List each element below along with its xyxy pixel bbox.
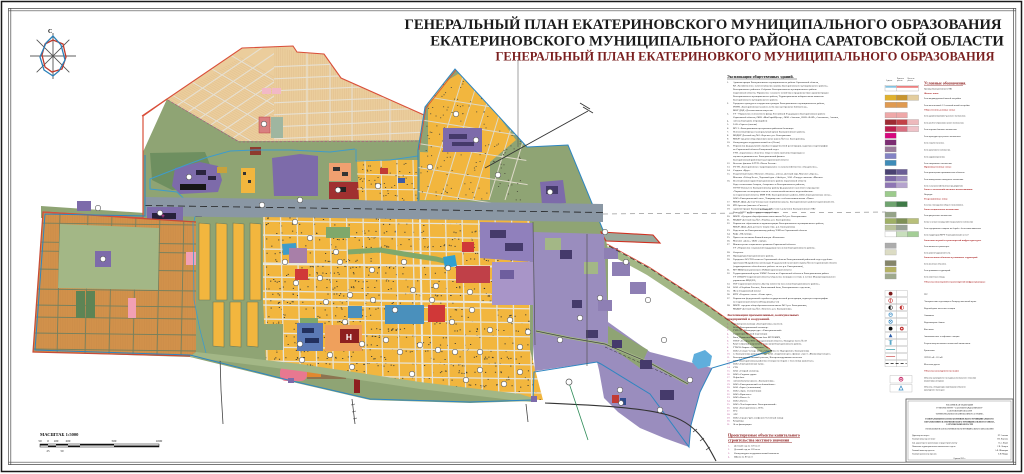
- svg-text:Зона индивидуальной жилой заст: Зона индивидуальной жилой застройки: [924, 97, 962, 100]
- svg-text:ГУ «Управление социальной подд: ГУ «Управление социальной поддержки насе…: [733, 246, 816, 249]
- svg-text:Зоны сельскохозяйственного исп: Зоны сельскохозяйственного использования…: [924, 188, 973, 191]
- svg-text:по Саратовской области, МРИ ФН: по Саратовской области, МРИ ФНС Екатерин…: [733, 194, 832, 197]
- svg-text:Отделение по Екатериновскому р: Отделение по Екатериновскому району УФК …: [733, 229, 808, 232]
- svg-text:ЛЭП 35 кВ - 110 кВ: ЛЭП 35 кВ - 110 кВ: [924, 357, 943, 359]
- svg-text:200: 200: [66, 439, 71, 443]
- svg-text:Зона режимных территорий.: Зона режимных территорий.: [924, 269, 951, 272]
- svg-text:Физкультурно-оздоровительный з: Физкультурно-оздоровительный зал (Venus): [733, 141, 780, 144]
- svg-text:Главный инженер проекта: Главный инженер проекта: [912, 449, 934, 452]
- svg-text:ОБРАЗОВАНИЯ ЕКАТЕРИНОВСКОГО МУ: ОБРАЗОВАНИЯ ЕКАТЕРИНОВСКОГО МУНИЦИПАЛЬНО…: [924, 420, 995, 423]
- svg-text:С: С: [48, 29, 52, 35]
- svg-text:Н: Н: [346, 332, 352, 342]
- svg-text:10.: 10.: [727, 141, 731, 144]
- svg-text:Зам. директора по архитектуре: Зам. директора по архитектуре и градостр…: [912, 442, 957, 444]
- svg-text:50: 50: [38, 439, 42, 443]
- svg-text:31.: 31.: [727, 423, 731, 426]
- svg-text:Зоны специального назначения:: Зоны специального назначения:: [924, 208, 959, 211]
- svg-text:Огороды.: Огороды.: [924, 194, 933, 196]
- svg-text:ГЕНЕРАЛЬНЫЙ ПЛАН ЕКАТЕРИНОВСКО: ГЕНЕРАЛЬНЫЙ ПЛАН ЕКАТЕРИНОВСКОГО МУНИЦИП…: [925, 418, 994, 421]
- svg-text:Объекты, обладающие признаками: Объекты, обладающие признаками объектов: [924, 386, 965, 389]
- svg-text:Водонапорные башни: Водонапорные башни: [924, 321, 945, 324]
- svg-text:Зона торгово-бытового назначен: Зона торгово-бытового назначения.: [924, 128, 957, 131]
- svg-text:Водозаборные насосные станции: Водозаборные насосные станции: [924, 307, 956, 310]
- svg-text:КПУ «Раздолье» кооп. «Салис ор: КПУ «Раздолье» кооп. «Салис орга»,: [733, 293, 773, 296]
- svg-text:Зона учебно-образовательного н: Зона учебно-образовательного назначения.: [924, 121, 965, 124]
- svg-text:37.: 37.: [727, 297, 731, 300]
- svg-text:Принято в: Принято в: [897, 78, 904, 80]
- svg-text:Зона территории МУЧ "Екатерино: Зона территории МУЧ "Екатериновский лесх…: [924, 233, 969, 236]
- svg-text:3.: 3.: [727, 113, 729, 116]
- svg-text:27.: 27.: [727, 243, 731, 246]
- svg-text:Скважины: Скважины: [924, 315, 934, 317]
- svg-text:Зона сельскохозяйственных пред: Зона сельскохозяйственных предприятий.: [924, 184, 963, 187]
- svg-text:32.: 32.: [727, 272, 731, 275]
- svg-text:30.: 30.: [727, 258, 731, 261]
- svg-text:Зоны зеленых насаждений специа: Зоны зеленых насаждений специального наз…: [924, 220, 973, 223]
- svg-text:строительства местного значени: строительства местного значения: [728, 438, 790, 443]
- svg-text:Зона коммунально-складского на: Зона коммунально-складского назначения.: [924, 179, 964, 181]
- svg-text:Экспликация общественных здани: Экспликация общественных зданий.: [727, 74, 794, 79]
- svg-text:МБДОУ Детский сад №3 «Топотон»: МБДОУ Детский сад №3 «Топотон» р.п. Екат…: [733, 307, 792, 310]
- svg-text:Зона ритуального назначения.: Зона ритуального назначения.: [924, 215, 952, 217]
- svg-text:Р.Г. Алешин: Р.Г. Алешин: [998, 434, 1009, 437]
- svg-text:Ералгазина: Ералгазина: [924, 350, 935, 352]
- svg-text:22.: 22.: [727, 222, 731, 225]
- svg-text:Объекты культурного наследия р: Объекты культурного наследия регионально…: [924, 377, 976, 380]
- svg-text:Зона внешнего транспорта.: Зона внешнего транспорта.: [924, 246, 950, 248]
- svg-text:Зеленые насаждения общего поль: Зеленые насаждения общего пользования.: [924, 203, 964, 206]
- svg-text:Общественно-деловые зоны:: Общественно-деловые зоны:: [924, 108, 955, 111]
- svg-text:500: 500: [112, 439, 117, 443]
- svg-text:Зона улично-дорожной сети.: Зона улично-дорожной сети.: [924, 252, 951, 255]
- svg-text:Граница Екатериновского МО: Граница Екатериновского МО: [924, 89, 952, 91]
- svg-text:ГРС: ГРС: [924, 294, 929, 296]
- svg-text:РОССИЙСКАЯ ФЕДЕРАЦИЯ: РОССИЙСКАЯ ФЕДЕРАЦИЯ: [946, 404, 974, 407]
- svg-text:ГЕНЕРАЛЬНЫЙ ПЛАН ЕКАТЕРИНОВСКО: ГЕНЕРАЛЬНЫЙ ПЛАН ЕКАТЕРИНОВСКОГО МУНИЦИП…: [404, 16, 1001, 33]
- svg-text:1.: 1.: [728, 445, 730, 448]
- svg-text:25: 25: [47, 449, 51, 453]
- svg-text:Главный архитектор проекта: Главный архитектор проекта: [912, 453, 937, 456]
- svg-text:Котельная: Котельная: [924, 329, 934, 331]
- svg-text:Физкультурно-оздоровительный к: Физкультурно-оздоровительный комплекс: [734, 452, 780, 455]
- svg-text:Зона военных объектов.: Зона военных объектов.: [924, 262, 947, 265]
- svg-text:Директор института: Директор института: [912, 435, 929, 437]
- svg-text:Зона малоэтажной 1-3 этажной ж: Зона малоэтажной 1-3 этажной жилой застр…: [924, 104, 970, 107]
- svg-text:Детский сад на 120 мест: Детский сад на 120 мест: [734, 445, 761, 448]
- svg-text:Школа на 80 мест: Школа на 80 мест: [734, 456, 754, 459]
- svg-text:Зона культового назначения.: Зона культового назначения.: [924, 150, 951, 152]
- svg-text:Магазин «Гейзер Белл», Торговы: Магазин «Гейзер Белл», Торговый дом «Айс…: [733, 176, 824, 179]
- svg-text:ГЕНЕРАЛЬНЫЙ ПЛАН ЕКАТЕРИНОВКОГ: ГЕНЕРАЛЬНЫЙ ПЛАН ЕКАТЕРИНОВКОГО МУНИЦИПА…: [495, 50, 994, 64]
- svg-text:2.: 2.: [728, 448, 730, 451]
- svg-text:Леса фильтрации: Леса фильтрации: [733, 423, 752, 426]
- svg-text:16.: 16.: [727, 180, 731, 183]
- svg-text:Зона содержания и защиты по бо: Зона содержания и защиты по борьбе с бол…: [924, 227, 982, 230]
- svg-text:15.: 15.: [727, 173, 731, 176]
- svg-text:Производственные зоны:: Производственные зоны:: [924, 166, 952, 169]
- svg-text:(памятники истории): (памятники истории): [924, 380, 944, 383]
- svg-text:ГЕНЕРАЛЬНЫЙ ПЛАН ЕКАТЕРИНОВСКО: ГЕНЕРАЛЬНЫЙ ПЛАН ЕКАТЕРИНОВСКОГО МУНИЦИП…: [925, 428, 994, 431]
- svg-text:ТЕРРИТОРИАЛЬНОЕ ПЛАНИРОВАНИЕ И: ТЕРРИТОРИАЛЬНОЕ ПЛАНИРОВАНИЕ И ЗАСТРОЙКА: [936, 413, 984, 416]
- svg-text:Екатериновское районное Собран: Екатериновское районное Собрание Екатери…: [733, 88, 817, 91]
- svg-text:ГУПП ИНСТИТУТ "САРАТОВГРАЖДАНП: ГУПП ИНСТИТУТ "САРАТОВГРАЖДАНПРОЕКТ": [936, 407, 983, 410]
- svg-text:Главный инженер институт: Главный инженер институт: [912, 438, 935, 441]
- svg-text:50: 50: [61, 449, 65, 453]
- svg-text:0: 0: [47, 439, 49, 443]
- svg-text:1000: 1000: [156, 439, 163, 443]
- svg-text:РМУК «Екатериновская межпоселе: РМУК «Екатериновская межпоселенческая це…: [733, 106, 808, 109]
- svg-text:23.: 23.: [727, 229, 731, 232]
- svg-text:3.: 3.: [728, 452, 730, 455]
- svg-text:Автоматические телефонные стан: Автоматические телефонные станции: [924, 335, 960, 338]
- svg-text:Объекты инженерной и транспорт: Объекты инженерной и транспортной инфрас…: [924, 281, 986, 284]
- svg-text:Саратов 2012 г.: Саратов 2012 г.: [953, 458, 966, 460]
- svg-text:А.В. Шишорин: А.В. Шишорин: [995, 449, 1009, 452]
- svg-text:Зона очистных отвода.: Зона очистных отвода.: [924, 277, 946, 279]
- svg-text:Зона культурно-досугового назн: Зона культурно-досугового назначения.: [924, 136, 961, 138]
- svg-text:5.: 5.: [727, 123, 729, 126]
- svg-text:2.: 2.: [727, 102, 729, 105]
- svg-text:19.: 19.: [727, 208, 731, 211]
- svg-text:36.: 36.: [727, 293, 731, 296]
- svg-text:ГУ СМЦ РФ Саратовской области,: ГУ СМЦ РФ Саратовской области, Отделение…: [733, 276, 836, 279]
- svg-text:Зоны военных объектов и режимн: Зоны военных объектов и режимных террито…: [924, 256, 978, 259]
- svg-text:4.: 4.: [728, 456, 730, 459]
- svg-text:Проект на: Проект на: [908, 78, 915, 80]
- svg-text:1.: 1.: [727, 81, 729, 84]
- svg-text:МАСШТАБ 1:5000: МАСШТАБ 1:5000: [40, 432, 79, 437]
- svg-text:культурного наследия: культурного наследия: [924, 390, 944, 392]
- svg-text:предприятий и сооружений.: предприятий и сооружений.: [727, 317, 770, 321]
- svg-text:Екатериновский районный суд Са: Екатериновский районный суд Саратовской …: [733, 158, 789, 161]
- svg-text:Е.И. Мирра: Е.И. Мирра: [998, 454, 1008, 456]
- svg-text:ЗАО «Сарнет»(аптека): ЗАО «Сарнет»(аптека): [733, 123, 757, 126]
- svg-text:Зона размещения промышленных о: Зона размещения промышленных объектов: [924, 171, 964, 174]
- svg-text:ЕКАТЕРИНОВСКОГО МУНИЦИПАЛЬНОГО: ЕКАТЕРИНОВСКОГО МУНИЦИПАЛЬНОГО РАЙОНА СА…: [430, 33, 1004, 50]
- svg-text:расчетн.: расчетн.: [897, 80, 903, 82]
- svg-text:Зона здравоохранения.: Зона здравоохранения.: [924, 156, 946, 158]
- svg-text:Электрические подстанции и Рас: Электрические подстанции и Распределител…: [924, 300, 976, 303]
- svg-text:100: 100: [54, 439, 59, 443]
- svg-text:ОАО «Екатериновское АТП»: ОАО «Екатериновское АТП»: [733, 406, 764, 409]
- svg-text:Городские ФССП России по Сарат: Городские ФССП России по Саратовской обл…: [733, 258, 833, 261]
- svg-text:Отдел ЗАГС по Екатериновскому: Отдел ЗАГС по Екатериновскому району: [733, 211, 778, 214]
- svg-text:Рекреационные зоны:: Рекреационные зоны:: [924, 198, 948, 201]
- svg-text:Условные обозначения.: Условные обозначения.: [924, 81, 966, 86]
- svg-text:Существ.: Существ.: [886, 80, 893, 82]
- svg-text:Начальник территориального ком: Начальник территориального комплексного …: [912, 446, 956, 448]
- svg-text:11.: 11.: [727, 144, 730, 147]
- svg-text:САРАТОВСКОЙ ОБЛАСТИ: САРАТОВСКОЙ ОБЛАСТИ: [947, 410, 972, 413]
- svg-text:Зоны инженерной и транспортной: Зоны инженерной и транспортной инфрастру…: [924, 239, 981, 242]
- svg-text:С.В. Лазарев: С.В. Лазарев: [997, 446, 1008, 448]
- svg-text:38.: 38.: [727, 304, 731, 307]
- svg-text:расчетн.: расчетн.: [908, 80, 914, 82]
- svg-text:Железная дорога: Железная дорога: [924, 364, 940, 366]
- svg-text:Объекты культурного наследия:: Объекты культурного наследия:: [924, 370, 959, 373]
- svg-text:Жилые зоны:: Жилые зоны:: [924, 92, 939, 95]
- svg-text:САРАТОВСКОЙ ОБЛАСТИ: САРАТОВСКОЙ ОБЛАСТИ: [946, 423, 973, 426]
- svg-text:Р.В. Корнева: Р.В. Корнева: [997, 439, 1008, 441]
- svg-text:В.А. Юдин: В.А. Юдин: [999, 441, 1009, 444]
- svg-text:Зона соцобеспечения.: Зона соцобеспечения.: [924, 142, 945, 145]
- svg-text:Зона административно-делового: Зона административно-делового назначения…: [924, 115, 966, 117]
- svg-text:Детский сад на 120 мест: Детский сад на 120 мест: [734, 448, 761, 451]
- svg-text:Ретранслятор волоконно-оптичес: Ретранслятор волоконно-оптической линии …: [924, 342, 971, 345]
